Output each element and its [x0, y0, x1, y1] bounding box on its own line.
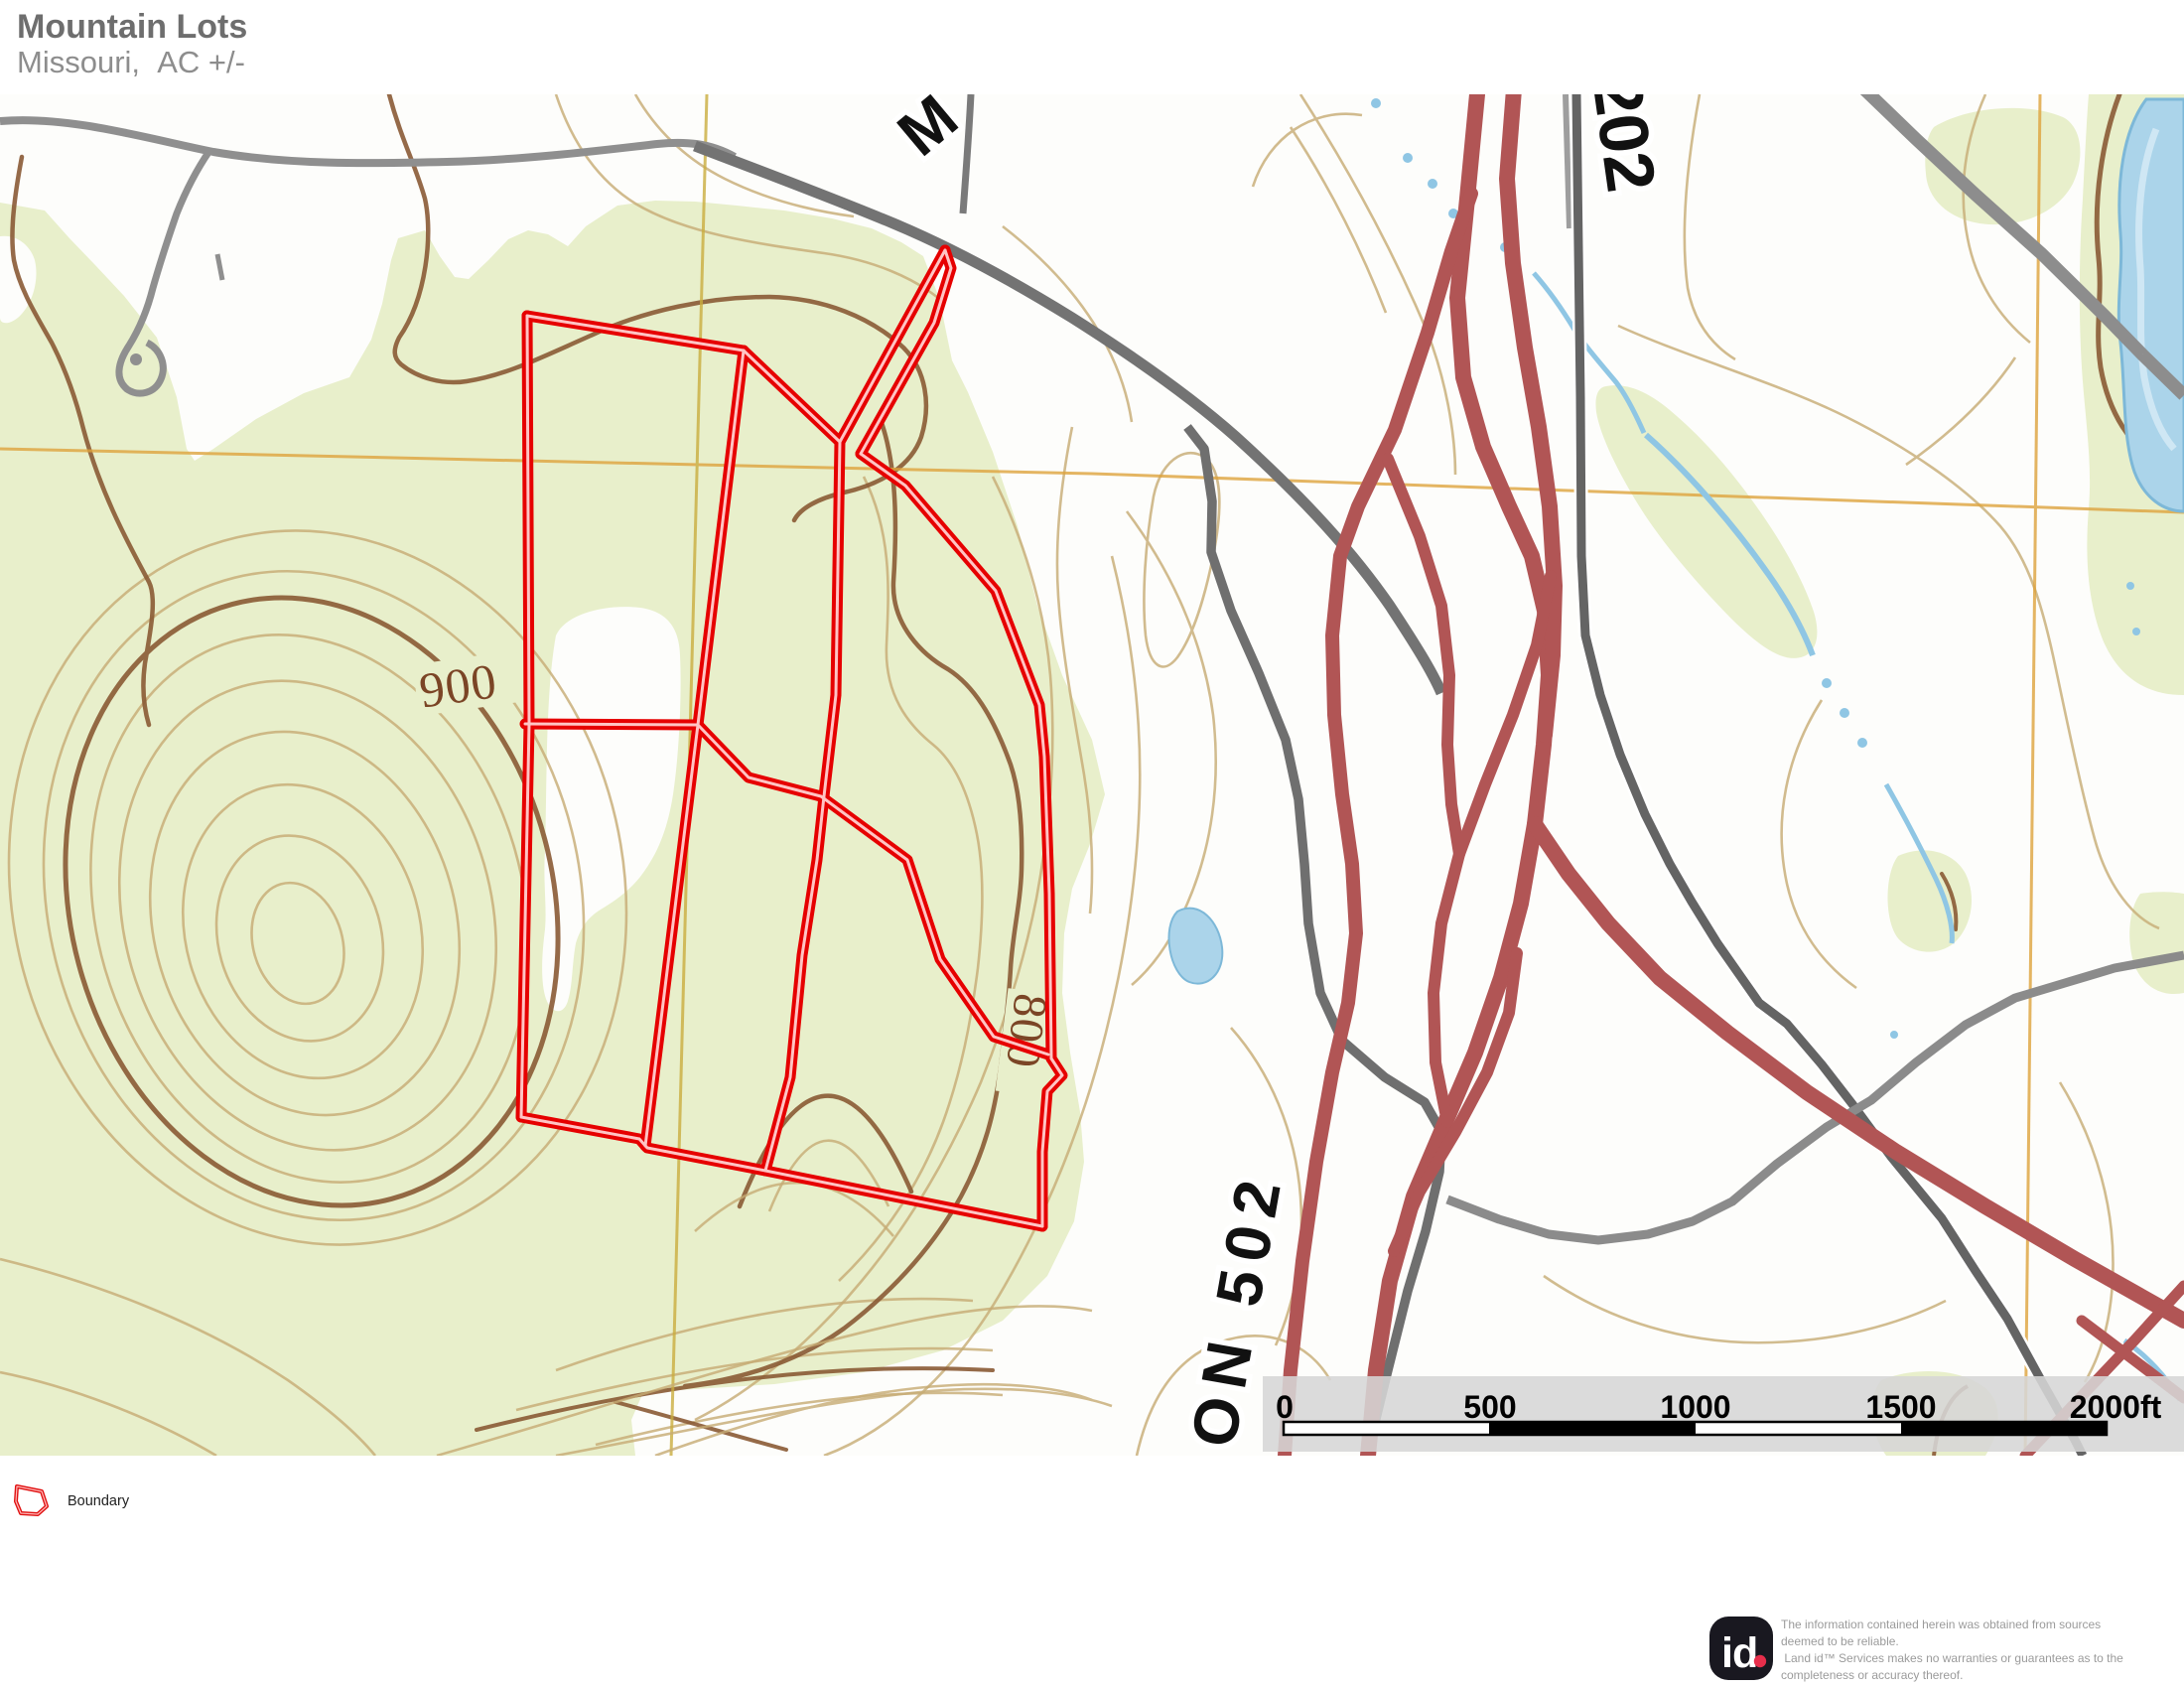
svg-text:2000ft: 2000ft: [2070, 1389, 2162, 1425]
svg-text:1000: 1000: [1660, 1389, 1730, 1425]
svg-text:Mountain Lots: Mountain Lots: [17, 8, 247, 46]
svg-text:500: 500: [1463, 1389, 1516, 1425]
svg-text:deemed to be reliable.: deemed to be reliable.: [1781, 1634, 1899, 1648]
svg-text:The information contained here: The information contained herein was obt…: [1781, 1618, 2101, 1631]
svg-text:Land id™ Services makes no war: Land id™ Services makes no warranties or…: [1781, 1651, 2123, 1665]
svg-text:Missouri, AC +/-: Missouri, AC +/-: [17, 45, 245, 79]
svg-text:0: 0: [1276, 1389, 1294, 1425]
svg-text:1500: 1500: [1865, 1389, 1936, 1425]
svg-text:completeness or accuracy there: completeness or accuracy thereof.: [1781, 1668, 1963, 1682]
svg-text:900: 900: [416, 652, 500, 718]
svg-text:id: id: [1721, 1629, 1757, 1677]
svg-text:Boundary: Boundary: [68, 1493, 130, 1509]
